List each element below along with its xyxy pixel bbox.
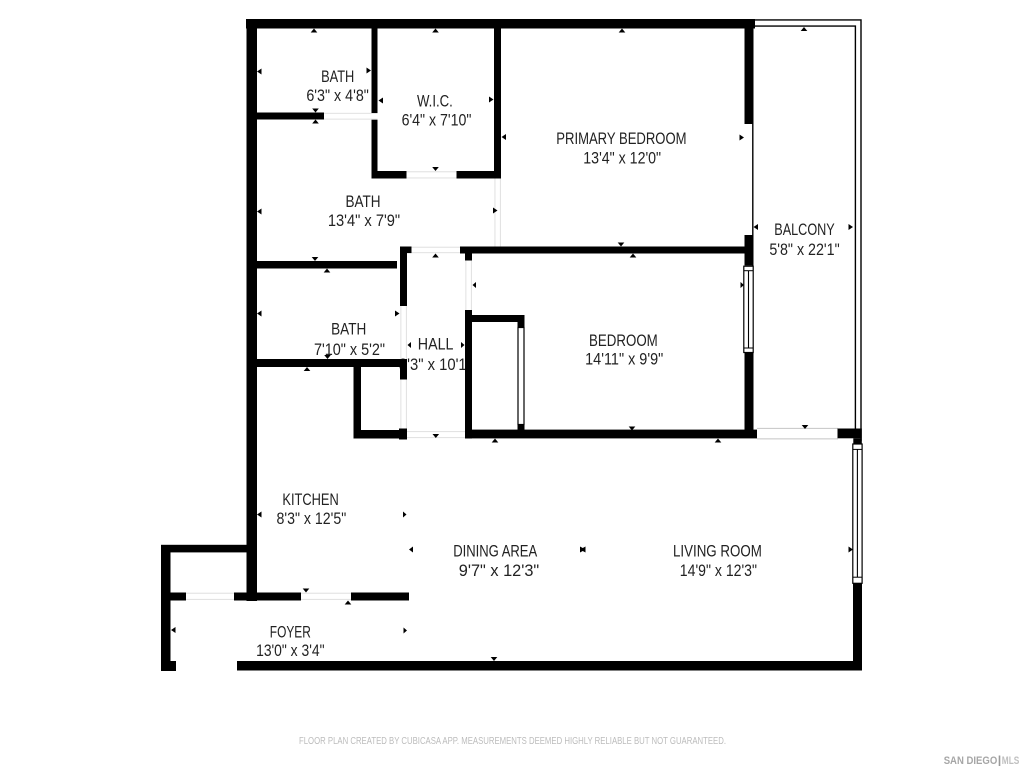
svg-text:BATH: BATH — [345, 193, 380, 211]
svg-text:MLS: MLS — [1002, 755, 1020, 767]
svg-text:BALCONY: BALCONY — [774, 221, 835, 239]
svg-text:13'4" x 12'0": 13'4" x 12'0" — [583, 149, 661, 167]
svg-text:7'10" x 5'2": 7'10" x 5'2" — [314, 341, 385, 359]
svg-text:13'0" x 3'4": 13'0" x 3'4" — [256, 642, 325, 660]
svg-text:13'4" x 7'9": 13'4" x 7'9" — [328, 212, 401, 230]
svg-text:8'3" x 12'5": 8'3" x 12'5" — [277, 510, 347, 528]
svg-text:BATH: BATH — [331, 321, 366, 339]
svg-text:LIVING ROOM: LIVING ROOM — [673, 542, 762, 560]
svg-text:W.I.C.: W.I.C. — [417, 93, 453, 111]
svg-text:BATH: BATH — [321, 68, 354, 86]
svg-text:14'9" x 12'3": 14'9" x 12'3" — [680, 562, 757, 580]
svg-text:5'8" x 22'1": 5'8" x 22'1" — [769, 241, 840, 259]
svg-text:HALL: HALL — [418, 335, 454, 353]
svg-text:SAN DIEGO: SAN DIEGO — [944, 755, 998, 767]
svg-text:6'3" x 4'8": 6'3" x 4'8" — [306, 87, 369, 105]
svg-text:FOYER: FOYER — [270, 623, 311, 641]
svg-text:9'7" x 12'3": 9'7" x 12'3" — [459, 562, 540, 580]
svg-text:PRIMARY BEDROOM: PRIMARY BEDROOM — [556, 130, 686, 148]
svg-text:DINING AREA: DINING AREA — [453, 542, 537, 560]
svg-text:3'3" x 10'1": 3'3" x 10'1" — [399, 356, 472, 374]
svg-text:6'4" x 7'10": 6'4" x 7'10" — [402, 112, 472, 130]
svg-text:FLOOR PLAN CREATED BY CUBICASA: FLOOR PLAN CREATED BY CUBICASA APP. MEAS… — [299, 736, 726, 747]
svg-text:14'11" x 9'9": 14'11" x 9'9" — [585, 351, 663, 369]
svg-text:BEDROOM: BEDROOM — [589, 332, 658, 350]
svg-text:KITCHEN: KITCHEN — [282, 491, 338, 509]
